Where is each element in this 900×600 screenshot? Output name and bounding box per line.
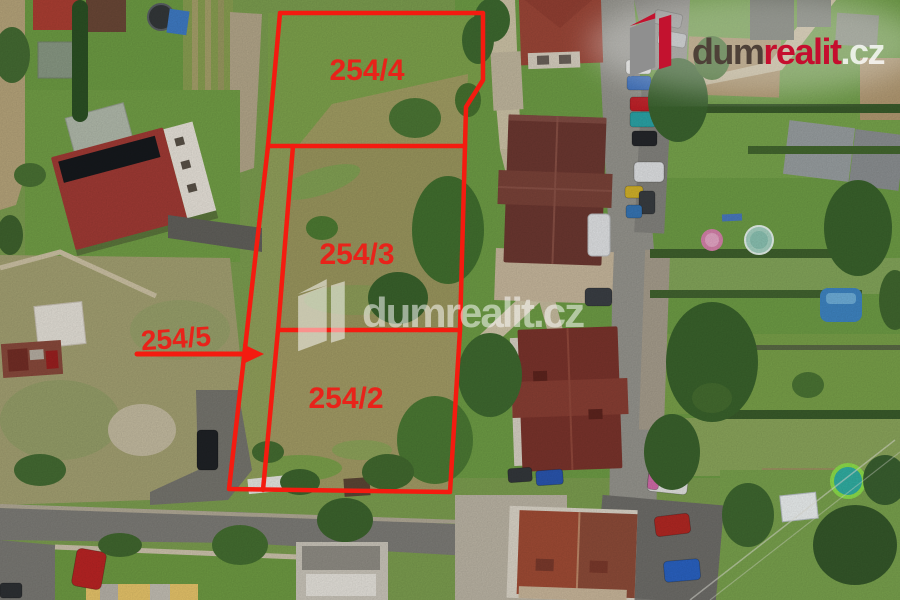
parcel-label-254-2: 254/2 xyxy=(308,382,383,415)
parcel-label-254-4: 254/4 xyxy=(329,54,404,87)
parcel-label-254-3: 254/3 xyxy=(319,238,394,271)
parcel-label-254-5: 254/5 xyxy=(140,321,212,357)
aerial-photo: 254/4 254/3 254/2 254/5 dumrealit.cz dum… xyxy=(0,0,900,600)
logo-text-realit: realit xyxy=(763,31,842,72)
logo-text: dumrealit.cz xyxy=(692,31,885,72)
aerial-photo-canvas: 254/4 254/3 254/2 254/5 dumrealit.cz dum… xyxy=(0,0,900,600)
logo-text-dum: dum xyxy=(692,31,764,72)
watermark-text: dumrealit.cz xyxy=(362,289,584,336)
logo-text-cz: .cz xyxy=(840,31,884,72)
